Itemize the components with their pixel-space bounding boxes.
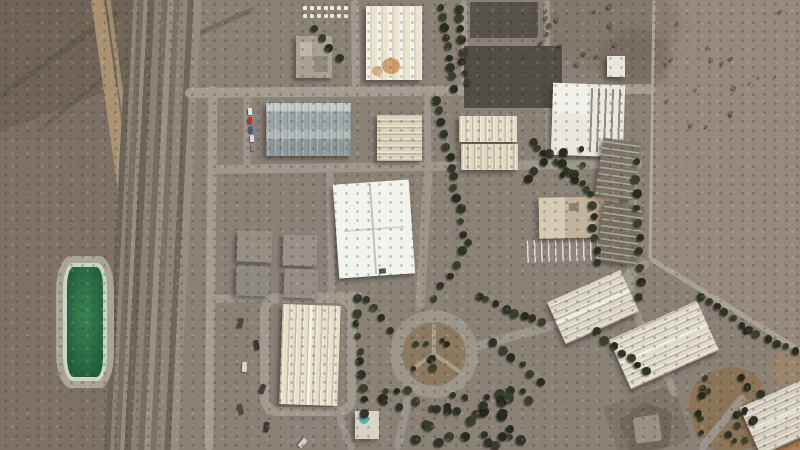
- satellite-photo: [0, 0, 800, 450]
- terrain-speckle: [0, 0, 800, 450]
- photo-grain: [0, 0, 800, 450]
- terrain-speckle-light: [0, 0, 800, 450]
- noise-layer: [0, 0, 800, 450]
